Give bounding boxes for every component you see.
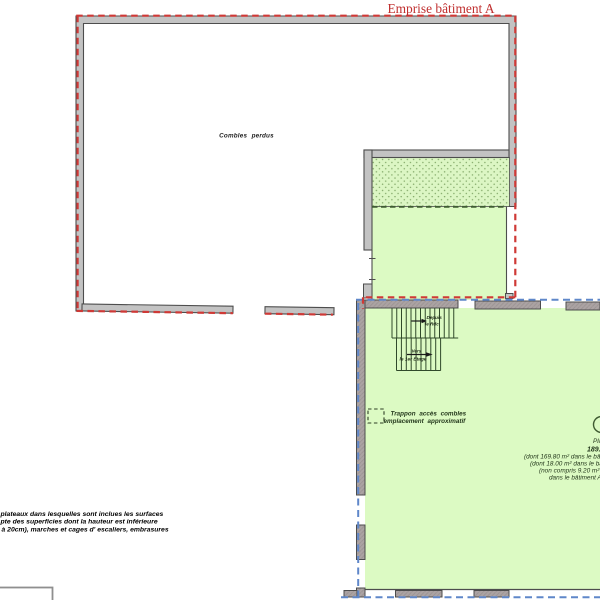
svg-text:pte des superficies dont la ha: pte des superficies dont la hauteur est … — [0, 519, 158, 526]
svg-text:(non compris 9.20 m² de trémie: (non compris 9.20 m² de trémie — [539, 468, 600, 475]
svg-text:189.80: 189.80 — [587, 447, 600, 454]
svg-text:emplacement approximatif: emplacement approximatif — [384, 418, 467, 425]
svg-text:Emprise bâtiment A: Emprise bâtiment A — [387, 1, 494, 16]
svg-text:Plateau: Plateau — [593, 438, 600, 445]
svg-text:dans le bâtiment A): dans le bâtiment A) — [549, 475, 600, 482]
svg-text:(dont 169.80 m² dans le bâtime: (dont 169.80 m² dans le bâtiment A — [524, 454, 600, 461]
svg-text:le Rdc: le Rdc — [425, 322, 439, 327]
svg-text:(dont 18.00 m² dans le bâtimen: (dont 18.00 m² dans le bâtiment B — [530, 461, 600, 468]
svg-text:Vers: Vers — [412, 349, 422, 354]
svg-text:plateaux dans lesquelles sont: plateaux dans lesquelles sont inclues le… — [0, 511, 164, 518]
svg-text:à 20cm), marches et cages d' e: à 20cm), marches et cages d' escaliers, … — [2, 526, 169, 533]
svg-text:Combles perdus: Combles perdus — [219, 132, 274, 139]
svg-text:Trappon accès combles: Trappon accès combles — [391, 411, 467, 418]
svg-text:Depuis: Depuis — [427, 315, 443, 320]
